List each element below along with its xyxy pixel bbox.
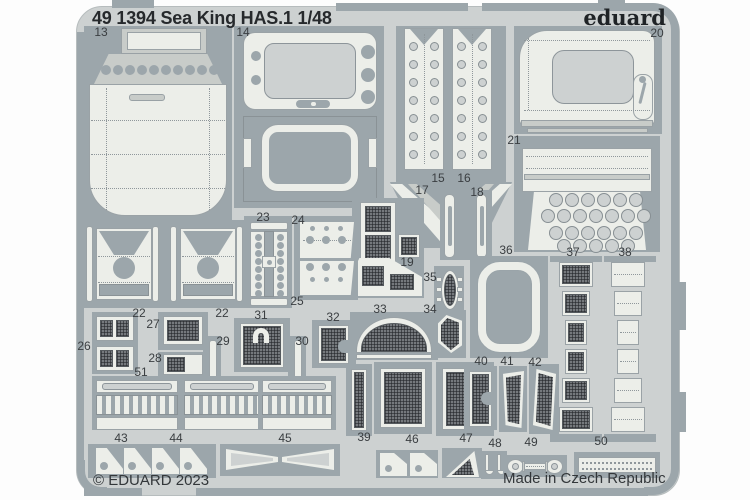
bore: [322, 263, 330, 271]
ringhole: [637, 209, 651, 223]
carrier: [604, 434, 656, 442]
bore: [185, 65, 195, 75]
mesh: [384, 372, 422, 424]
hdot: [617, 303, 639, 304]
bore: [173, 65, 183, 75]
part-number-label: 49: [524, 435, 537, 449]
bore: [310, 226, 315, 231]
bore: [255, 258, 262, 265]
part-number-label: 24: [291, 213, 304, 227]
mesh: [568, 323, 584, 342]
bore: [251, 75, 261, 85]
part-number-label: 51: [134, 365, 147, 379]
mesh: [100, 350, 113, 367]
mesh: [116, 350, 129, 367]
mesh: [116, 320, 129, 337]
part-number-label: 37: [566, 245, 579, 259]
hdot: [620, 361, 636, 362]
ringhole: [409, 132, 418, 141]
frame-bar: [679, 282, 686, 330]
part: [129, 94, 165, 101]
vdot: [424, 34, 425, 164]
bore: [361, 68, 375, 82]
part-number-label: 38: [618, 245, 631, 259]
hdot: [91, 154, 225, 155]
face: [436, 277, 442, 282]
bore: [277, 282, 284, 289]
part-number-label: 43: [114, 431, 127, 445]
ringhole: [478, 78, 487, 87]
part-dark: [99, 284, 149, 296]
part-number-label: 27: [146, 317, 159, 331]
ringhole: [597, 226, 611, 240]
ringhole: [457, 150, 466, 159]
part-number-label: 40: [474, 354, 487, 368]
ringhole: [565, 226, 579, 240]
frame-fill: [480, 206, 484, 246]
part-number-label: 16: [457, 171, 470, 185]
ringhole: [478, 42, 487, 51]
pe-fret: 1314151617181920212222232425262728293031…: [0, 0, 750, 500]
bore: [306, 263, 314, 271]
poly-mesh: [536, 373, 553, 426]
louver: [262, 395, 332, 415]
frame-fill: [448, 206, 452, 246]
hdot: [582, 462, 652, 464]
ringhole: [430, 132, 439, 141]
bore: [251, 51, 261, 61]
bore: [277, 250, 284, 257]
part-number-label: 28: [148, 351, 161, 365]
part-number-label: 25: [290, 294, 303, 308]
mesh: [365, 206, 391, 232]
vdot: [209, 88, 210, 210]
hdot: [620, 332, 636, 333]
cut: [264, 43, 356, 99]
ringhole: [457, 78, 466, 87]
hdot: [526, 168, 648, 169]
bore: [255, 242, 262, 249]
hdot: [526, 156, 648, 157]
face: [96, 417, 178, 430]
hdot: [524, 40, 650, 41]
ringhole: [478, 60, 487, 69]
ringhole: [581, 193, 595, 207]
ringhole: [549, 193, 563, 207]
ringhole: [430, 60, 439, 69]
ringhole: [573, 209, 587, 223]
ringhole: [478, 150, 487, 159]
ringhole: [541, 209, 555, 223]
bore: [306, 236, 314, 244]
cut: [190, 383, 254, 390]
part-number-label: 39: [357, 430, 370, 444]
bore: [385, 465, 392, 472]
hdot: [614, 274, 642, 275]
ringhole: [549, 226, 563, 240]
mesh: [565, 294, 587, 313]
ringhole: [409, 60, 418, 69]
face: [127, 32, 201, 50]
hdot: [524, 110, 650, 111]
vdot: [528, 38, 529, 110]
mesh: [562, 410, 590, 429]
ringhole: [613, 193, 627, 207]
bore: [338, 236, 346, 244]
bore: [255, 250, 262, 257]
face: [170, 226, 177, 302]
bore: [255, 234, 262, 241]
ringhole: [565, 193, 579, 207]
ringhole: [430, 114, 439, 123]
part-number-label: 31: [254, 308, 267, 322]
bore: [197, 65, 207, 75]
louver: [96, 395, 178, 415]
mesh: [444, 274, 456, 306]
bore: [125, 65, 135, 75]
ringhole: [621, 209, 635, 223]
part-number-label: 32: [326, 310, 339, 324]
part-number-label: 47: [459, 431, 472, 445]
mesh: [362, 266, 384, 286]
u-shape: [253, 328, 269, 343]
frame-bar: [196, 488, 648, 496]
poly-mesh: [506, 375, 521, 424]
face: [86, 226, 93, 302]
mesh: [167, 320, 199, 341]
hdot: [182, 282, 234, 283]
bore: [324, 226, 329, 231]
bore: [267, 260, 272, 265]
hdot: [91, 188, 225, 189]
bore: [197, 257, 219, 279]
part-number-label: 23: [256, 210, 269, 224]
hdot: [617, 390, 639, 391]
bore: [277, 258, 284, 265]
pe-fret-sheet-image: 1314151617181920212222232425262728293031…: [0, 0, 750, 500]
mesh: [568, 352, 584, 371]
bore: [255, 290, 262, 297]
bore: [277, 274, 284, 281]
bore: [255, 282, 262, 289]
mesh: [565, 381, 587, 400]
ringhole: [409, 96, 418, 105]
mesh: [401, 237, 417, 255]
part-number-label: 46: [405, 432, 418, 446]
ringhole: [409, 78, 418, 87]
frame-fill: [338, 340, 349, 353]
vdot: [106, 88, 107, 210]
catalog-title: 49 1394 Sea King HAS.1 1/48: [92, 8, 332, 29]
bore: [184, 462, 192, 470]
ringhole: [605, 209, 619, 223]
face: [152, 226, 159, 302]
ringhole: [457, 60, 466, 69]
bore: [338, 226, 343, 231]
ringhole: [409, 42, 418, 51]
ringframe: [262, 125, 358, 191]
cut: [102, 383, 172, 390]
face: [236, 226, 243, 302]
ringhole: [589, 239, 603, 253]
face: [89, 84, 227, 216]
face: [522, 148, 652, 192]
copyright-text: © EDUARD 2023: [93, 472, 209, 489]
hdot: [614, 419, 642, 420]
part: [524, 174, 650, 180]
face: [368, 138, 377, 168]
ringhole: [478, 96, 487, 105]
mesh: [167, 357, 185, 372]
part-number-label: 41: [500, 354, 513, 368]
part-number-label: 22: [132, 306, 145, 320]
face: [457, 277, 463, 282]
part-number-label: 36: [499, 243, 512, 257]
bore: [338, 277, 343, 282]
hdot: [91, 120, 225, 121]
bore: [310, 277, 315, 282]
ringhole: [457, 42, 466, 51]
bore: [113, 65, 123, 75]
ringhole: [597, 193, 611, 207]
ringhole: [457, 114, 466, 123]
frame-bar: [112, 0, 154, 8]
bore: [137, 65, 147, 75]
ringhole: [589, 209, 603, 223]
face: [436, 287, 442, 292]
bore: [255, 274, 262, 281]
bore: [361, 90, 375, 104]
part-number-label: 35: [423, 270, 436, 284]
ringframe: [478, 262, 540, 352]
ringhole: [557, 209, 571, 223]
ringhole: [605, 239, 619, 253]
part-number-label: 18: [470, 185, 483, 199]
part-number-label: 50: [594, 434, 607, 448]
bore: [101, 65, 111, 75]
frame-fill: [481, 392, 492, 405]
face: [184, 417, 260, 430]
bore: [128, 462, 136, 470]
mesh: [562, 265, 590, 284]
ringhole: [581, 226, 595, 240]
ringhole: [430, 78, 439, 87]
made-in-text: Made in Czech Republic: [503, 470, 666, 487]
frame-bar: [77, 32, 84, 462]
mesh: [354, 372, 364, 428]
bore: [324, 277, 329, 282]
face: [457, 287, 463, 292]
ringhole: [478, 114, 487, 123]
bore: [338, 263, 346, 271]
bore: [209, 65, 219, 75]
part-number-label: 26: [77, 339, 90, 353]
ringhole: [629, 193, 643, 207]
part: [527, 128, 648, 133]
part-number-label: 30: [295, 334, 308, 348]
frame-bar: [671, 34, 679, 462]
frame-bar: [336, 3, 468, 11]
part-number-label: 22: [215, 306, 228, 320]
part-number-label: 42: [528, 355, 541, 369]
cut: [512, 463, 519, 470]
bore: [100, 462, 108, 470]
cut: [551, 463, 558, 470]
bore: [277, 242, 284, 249]
face: [262, 417, 332, 430]
part-number-label: 19: [400, 255, 413, 269]
part: [521, 120, 653, 127]
part-number-label: 44: [169, 431, 182, 445]
bore: [639, 76, 646, 83]
part-number-label: 17: [415, 183, 428, 197]
cut: [552, 50, 634, 104]
part-number-label: 48: [488, 436, 501, 450]
face: [250, 298, 288, 306]
mesh: [365, 235, 391, 261]
mesh: [100, 320, 113, 337]
part-number-label: 45: [278, 431, 291, 445]
frame-bar: [679, 392, 686, 432]
ringhole: [613, 226, 627, 240]
bore: [415, 465, 422, 472]
bore: [156, 462, 164, 470]
part-number-label: 29: [216, 334, 229, 348]
part-dark: [183, 284, 233, 296]
face: [243, 138, 252, 168]
part-number-label: 33: [373, 302, 386, 316]
bore: [277, 290, 284, 297]
ringhole: [629, 226, 643, 240]
brand-logo: eduard: [583, 5, 666, 30]
mesh: [390, 274, 414, 290]
part-number-label: 15: [431, 171, 444, 185]
bore: [322, 236, 330, 244]
face: [356, 354, 432, 359]
bore: [255, 266, 262, 273]
face: [436, 297, 442, 302]
bore: [149, 65, 159, 75]
bore: [113, 257, 135, 279]
ringhole: [457, 96, 466, 105]
part-number-label: 34: [423, 302, 436, 316]
bore: [277, 266, 284, 273]
bore: [277, 234, 284, 241]
bore: [361, 45, 375, 59]
hdot: [526, 466, 544, 467]
cut: [268, 383, 326, 390]
bore: [161, 65, 171, 75]
hdot: [98, 282, 150, 283]
ringhole: [478, 132, 487, 141]
face: [311, 102, 316, 106]
louver: [184, 395, 260, 415]
part-number-label: 21: [507, 133, 520, 147]
face: [457, 297, 463, 302]
ringhole: [430, 150, 439, 159]
ringhole: [430, 96, 439, 105]
ringhole: [457, 132, 466, 141]
ringhole: [409, 150, 418, 159]
ringhole: [430, 42, 439, 51]
ringhole: [409, 114, 418, 123]
vdot: [472, 34, 473, 164]
